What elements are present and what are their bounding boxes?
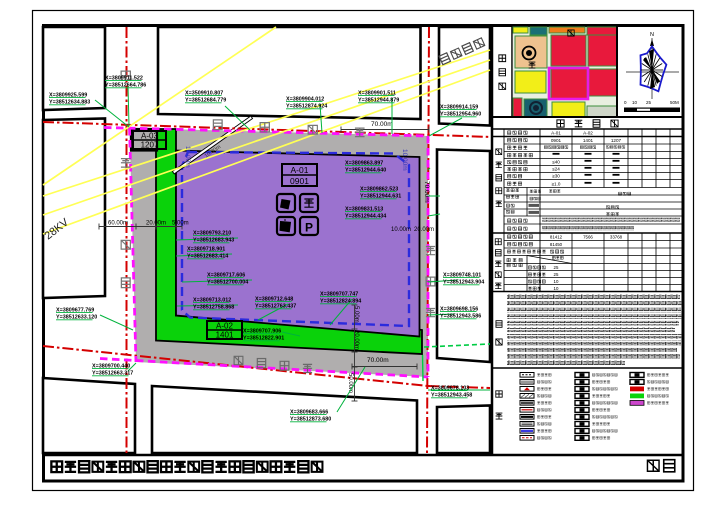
svg-text:50.00m: 50.00m [347,373,353,393]
svg-text:81450: 81450 [550,242,563,247]
svg-text:5.00m: 5.00m [172,221,189,227]
svg-text:20.00m: 20.00m [414,227,434,233]
svg-text:10.00m: 10.00m [184,146,191,168]
svg-text:0901: 0901 [290,176,309,186]
svg-text:50M: 50M [670,100,679,105]
svg-text:0901: 0901 [551,138,562,143]
svg-text:25: 25 [554,272,559,277]
svg-text:A-02: A-02 [216,322,233,331]
svg-text:≤24: ≤24 [552,166,560,171]
svg-text:10: 10 [554,286,559,291]
svg-text:7566: 7566 [583,235,593,240]
svg-text:P: P [305,221,313,235]
svg-text:60.00m: 60.00m [108,221,128,227]
svg-text:≤40: ≤40 [552,159,560,164]
svg-text:10.00m: 10.00m [401,149,408,171]
svg-text:10.00m: 10.00m [391,227,411,233]
svg-text:≥30: ≥30 [552,173,560,178]
svg-text:10: 10 [554,279,559,284]
svg-text:A-01: A-01 [551,131,561,136]
svg-text:1401: 1401 [583,138,594,143]
svg-text:70.00m: 70.00m [423,181,430,203]
svg-text:20.00m: 20.00m [353,330,359,350]
svg-text:1401: 1401 [216,331,234,340]
svg-text:1207: 1207 [141,141,159,150]
svg-text:5.00m: 5.00m [353,306,359,323]
svg-text:A-01: A-01 [291,165,309,175]
svg-text:20.00m: 20.00m [146,221,166,227]
svg-text:81412: 81412 [550,235,563,240]
svg-text:25: 25 [646,100,652,105]
svg-text:1207: 1207 [611,138,622,143]
svg-text:A-02: A-02 [583,131,593,136]
svg-text:A-03: A-03 [141,132,158,141]
svg-text:≥1.0: ≥1.0 [552,181,561,186]
svg-text:N: N [650,32,654,38]
svg-text:70.00m: 70.00m [367,357,389,364]
svg-text:70.00m: 70.00m [371,121,393,128]
svg-text:25: 25 [554,265,559,270]
svg-text:33768: 33768 [610,235,623,240]
svg-text:10: 10 [632,100,638,105]
